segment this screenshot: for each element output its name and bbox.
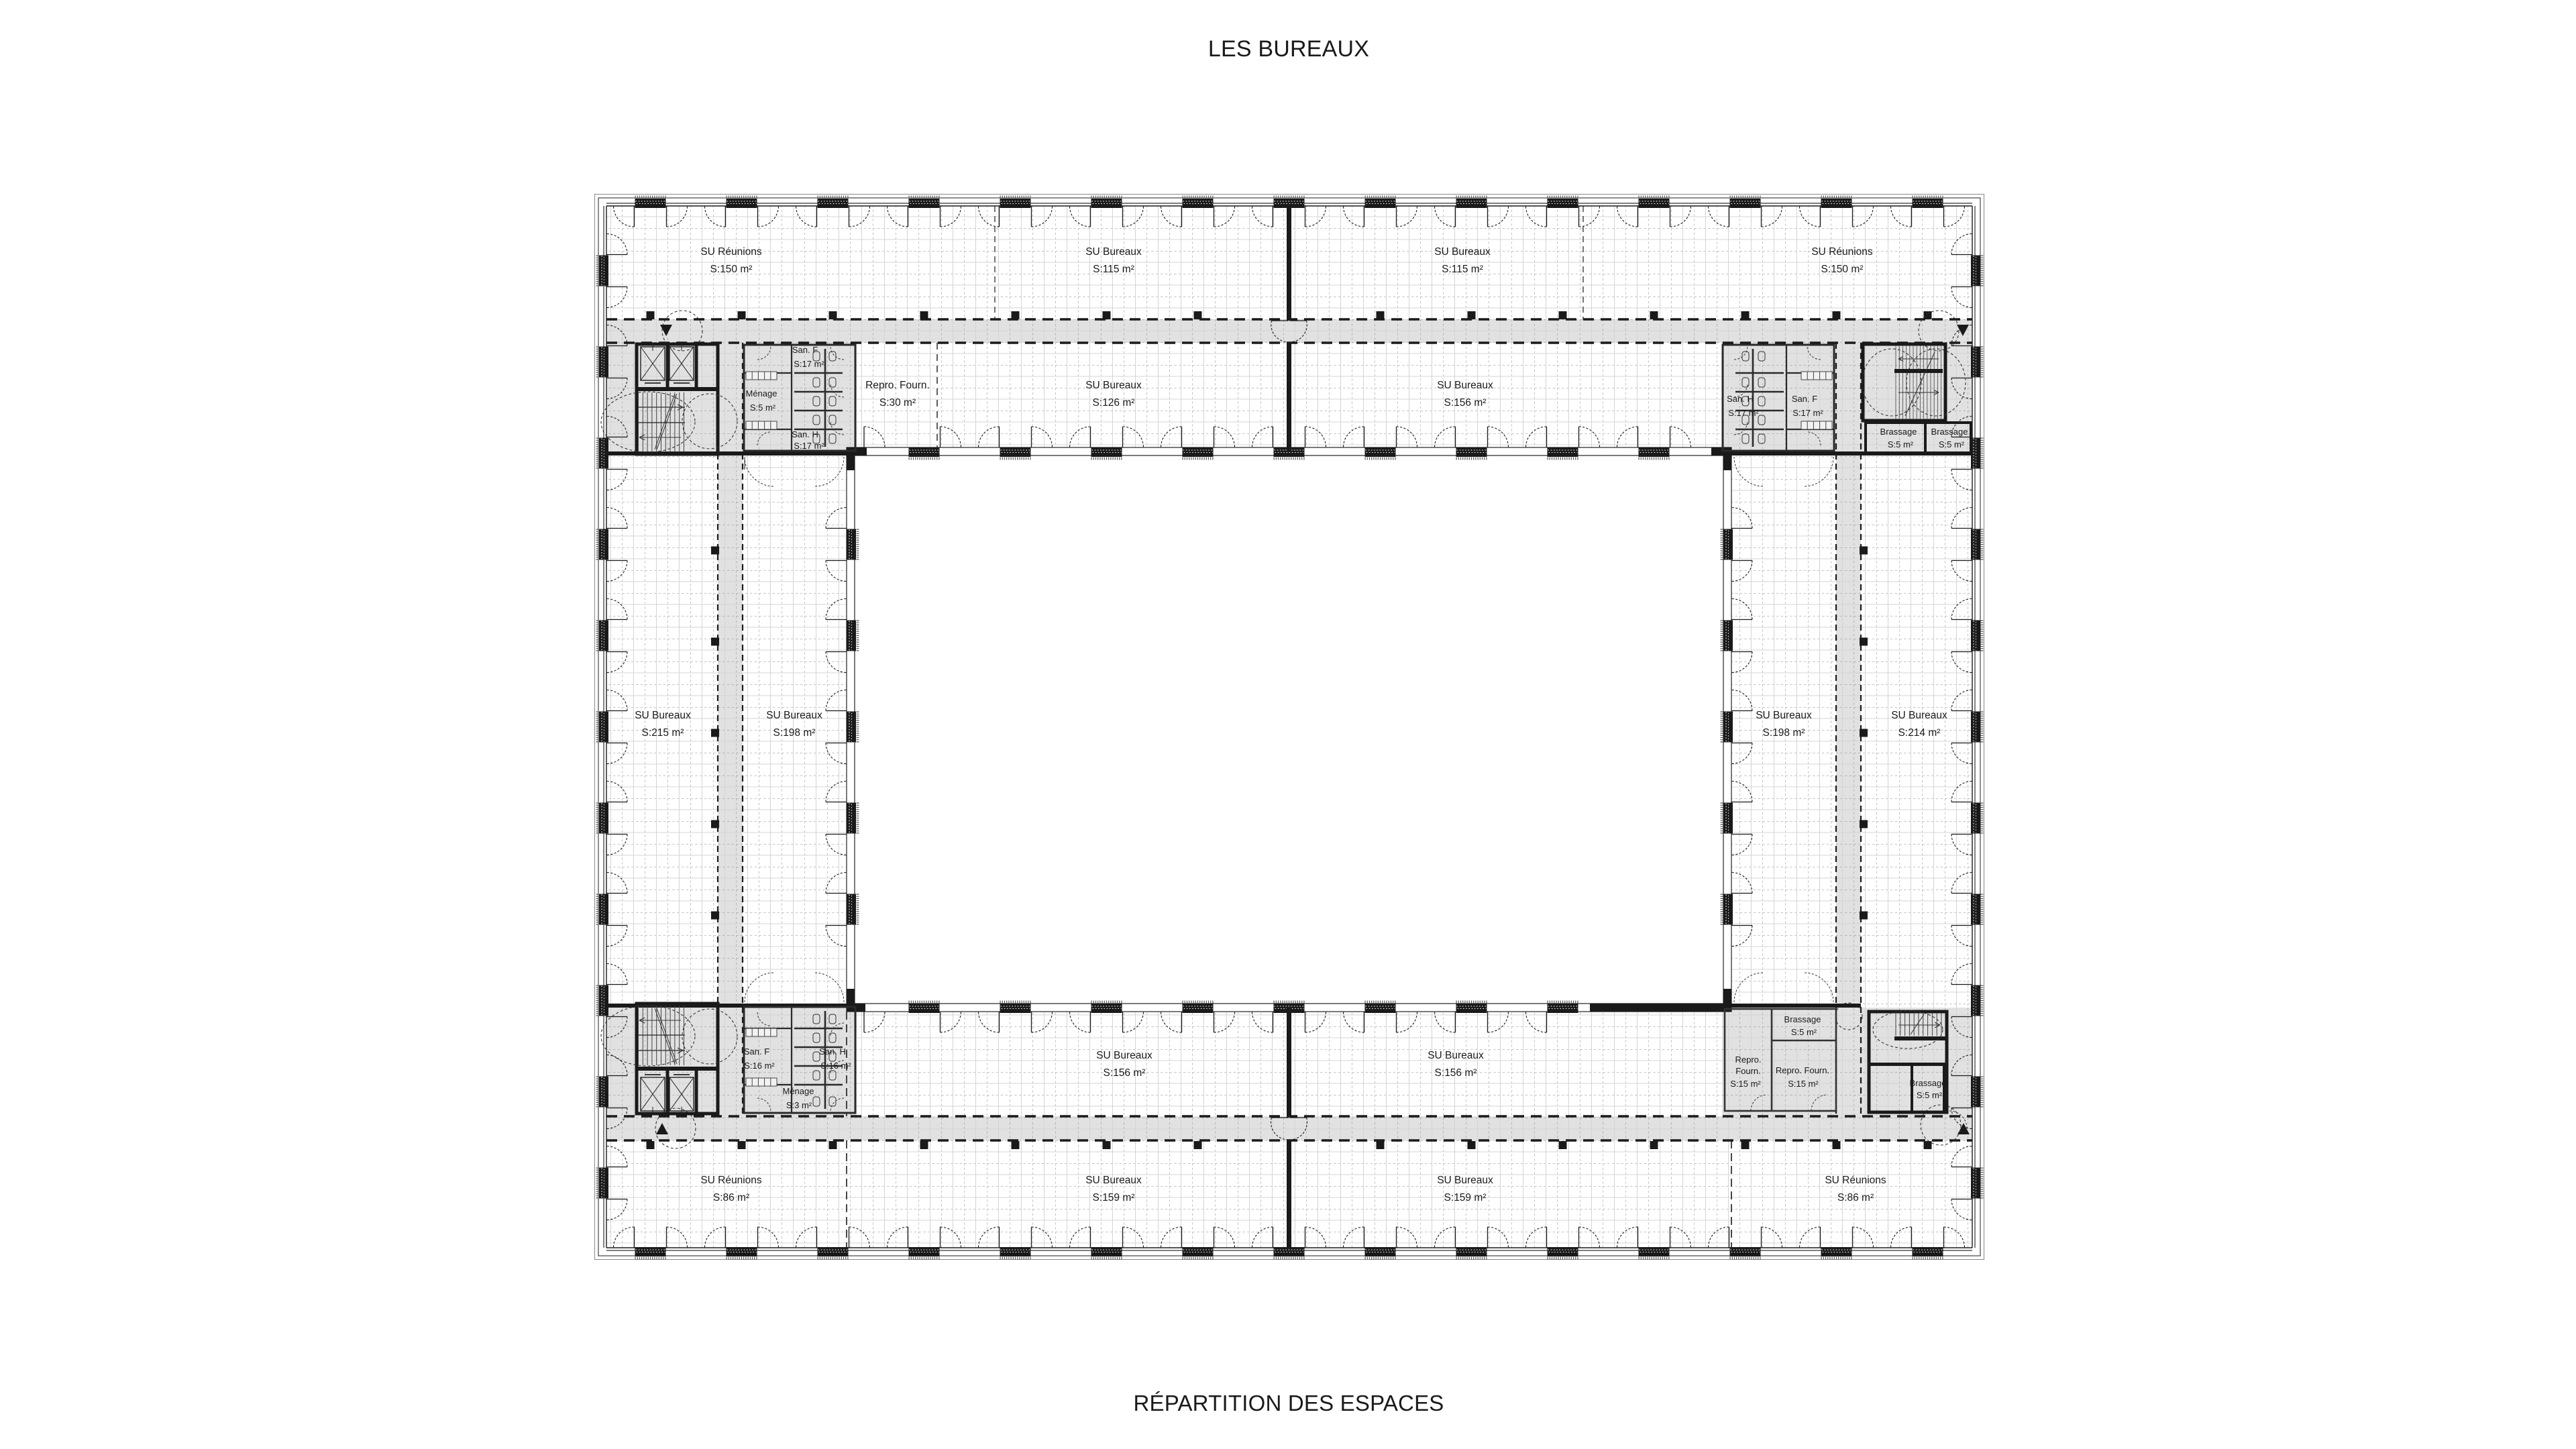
svg-text:Brassage: Brassage	[1910, 1078, 1947, 1088]
svg-text:Repro. Fourn.: Repro. Fourn.	[865, 380, 930, 391]
svg-text:San. F: San. F	[744, 1046, 769, 1057]
svg-text:SU Bureaux: SU Bureaux	[1891, 710, 1947, 721]
svg-text:SU Réunions: SU Réunions	[1811, 246, 1873, 258]
svg-text:S:159 m²: S:159 m²	[1093, 1192, 1135, 1203]
svg-text:S:3 m²: S:3 m²	[786, 1100, 812, 1110]
svg-text:SU Bureaux: SU Bureaux	[1096, 1050, 1152, 1061]
svg-text:S:115 m²: S:115 m²	[1442, 264, 1483, 275]
svg-text:SU Réunions: SU Réunions	[1825, 1175, 1886, 1186]
svg-text:S:86 m²: S:86 m²	[713, 1192, 749, 1203]
svg-text:S:214 m²: S:214 m²	[1898, 727, 1941, 739]
svg-text:LES BUREAUX: LES BUREAUX	[1208, 36, 1369, 62]
svg-text:S:159 m²: S:159 m²	[1444, 1192, 1487, 1203]
svg-text:S:16 m²: S:16 m²	[820, 1061, 851, 1071]
svg-text:S:150 m²: S:150 m²	[1821, 264, 1864, 275]
svg-text:S:5 m²: S:5 m²	[1939, 439, 1965, 449]
svg-text:S:156 m²: S:156 m²	[1435, 1067, 1477, 1079]
svg-text:SU Bureaux: SU Bureaux	[635, 710, 691, 721]
svg-text:San. H: San. H	[792, 429, 818, 439]
svg-text:S:115 m²: S:115 m²	[1093, 264, 1134, 275]
svg-text:Ménage: Ménage	[783, 1086, 814, 1096]
svg-text:S:5 m²: S:5 m²	[750, 402, 776, 413]
svg-text:SU Bureaux: SU Bureaux	[1437, 1175, 1493, 1186]
svg-text:Fourn.: Fourn.	[1735, 1066, 1761, 1076]
svg-text:San. F: San. F	[1792, 394, 1817, 404]
svg-text:SU Bureaux: SU Bureaux	[766, 710, 822, 721]
svg-text:Brassage: Brassage	[1931, 427, 1968, 437]
svg-text:SU Bureaux: SU Bureaux	[1085, 246, 1142, 258]
svg-text:S:30 m²: S:30 m²	[879, 397, 916, 409]
svg-text:S:17 m²: S:17 m²	[794, 441, 824, 451]
svg-text:S:198 m²: S:198 m²	[1763, 727, 1805, 739]
svg-text:S:198 m²: S:198 m²	[773, 727, 816, 739]
svg-text:S:15 m²: S:15 m²	[1788, 1079, 1819, 1089]
svg-text:S:17 m²: S:17 m²	[1792, 408, 1823, 418]
svg-text:SU Bureaux: SU Bureaux	[1428, 1050, 1484, 1061]
svg-text:SU Bureaux: SU Bureaux	[1437, 380, 1493, 391]
svg-text:S:17 m²: S:17 m²	[1728, 408, 1759, 418]
svg-text:S:156 m²: S:156 m²	[1444, 397, 1487, 409]
svg-text:SU Réunions: SU Réunions	[700, 246, 762, 258]
svg-text:Brassage: Brassage	[1880, 427, 1917, 437]
svg-text:RÉPARTITION DES ESPACES: RÉPARTITION DES ESPACES	[1133, 1391, 1444, 1415]
svg-text:S:156 m²: S:156 m²	[1104, 1067, 1146, 1079]
svg-text:S:15 m²: S:15 m²	[1730, 1079, 1761, 1089]
svg-text:SU Réunions: SU Réunions	[700, 1175, 762, 1186]
svg-text:S:215 m²: S:215 m²	[642, 727, 684, 739]
svg-text:Repro. Fourn.: Repro. Fourn.	[1776, 1065, 1829, 1075]
svg-text:San. H: San. H	[819, 1046, 846, 1057]
svg-text:San. F: San. F	[792, 345, 818, 355]
svg-text:SU Bureaux: SU Bureaux	[1085, 1175, 1142, 1186]
svg-text:Brassage: Brassage	[1784, 1014, 1821, 1024]
svg-text:Repro.: Repro.	[1735, 1055, 1761, 1065]
svg-text:Ménage: Ménage	[746, 388, 777, 398]
svg-text:SU Bureaux: SU Bureaux	[1085, 380, 1142, 391]
svg-text:SU Bureaux: SU Bureaux	[1434, 246, 1491, 258]
svg-text:San. H: San. H	[1727, 394, 1754, 404]
svg-text:S:86 m²: S:86 m²	[1837, 1192, 1874, 1203]
svg-text:S:5 m²: S:5 m²	[1791, 1027, 1817, 1037]
svg-text:S:126 m²: S:126 m²	[1093, 397, 1135, 409]
svg-text:S:16 m²: S:16 m²	[744, 1061, 775, 1071]
svg-text:S:5 m²: S:5 m²	[1917, 1090, 1943, 1100]
svg-text:S:150 m²: S:150 m²	[710, 264, 753, 275]
svg-text:S:17 m²: S:17 m²	[794, 359, 824, 369]
svg-text:S:5 m²: S:5 m²	[1888, 439, 1914, 449]
svg-text:SU Bureaux: SU Bureaux	[1756, 710, 1812, 721]
